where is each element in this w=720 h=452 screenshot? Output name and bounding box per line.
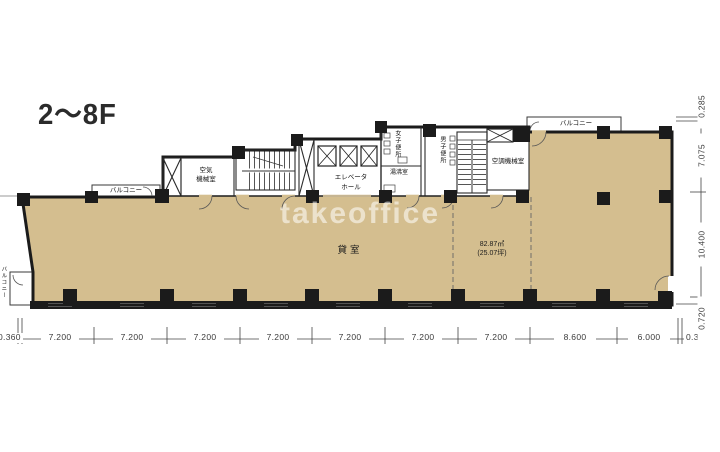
air-machine-room-label-2: 機械室 xyxy=(186,176,226,183)
right-wall-door-gap xyxy=(668,276,675,292)
dim-right-2: 10.400 xyxy=(698,223,709,267)
hot-water-room-label: 湯沸室 xyxy=(381,170,417,177)
dim-bottom-6: 7.200 xyxy=(404,333,442,343)
elevator-shafts xyxy=(318,146,377,166)
dim-bottom-left-end: 0.360 xyxy=(0,333,23,343)
dim-bottom-7: 7.200 xyxy=(477,333,515,343)
dim-bottom-2: 7.200 xyxy=(113,333,151,343)
dim-bottom-8: 8.600 xyxy=(554,333,596,343)
dim-right-0: 0.285 xyxy=(698,85,709,129)
rental-room-label: 貸室 xyxy=(328,246,372,257)
elevator-hall-label-2: ホール xyxy=(322,184,380,191)
rental-area-tsubo: (25.07坪) xyxy=(460,250,524,258)
elevator-hall-label-1: エレベータ xyxy=(322,174,380,181)
watermark: takeoffice xyxy=(280,197,440,231)
dim-bottom-5: 7.200 xyxy=(331,333,369,343)
balcony-top-right-label: バルコニー xyxy=(546,120,606,127)
dim-bottom-1: 7.200 xyxy=(41,333,79,343)
dim-right-1: 7.075 xyxy=(698,134,709,178)
balcony-top-left-label: バルコニー xyxy=(96,187,156,194)
balcony-bottom-left-label: バルコニー xyxy=(0,266,6,312)
dim-bottom-9: 6.000 xyxy=(628,333,670,343)
hvac-machine-room-label: 空調機械室 xyxy=(484,158,532,165)
dim-right-3: 0.720 xyxy=(698,297,709,341)
floor-title: 2〜8F xyxy=(38,99,117,132)
rental-area-m2: 82.87㎡ xyxy=(460,241,524,249)
mens-toilet-label: 男子便所 xyxy=(438,136,445,188)
dim-bottom-3: 7.200 xyxy=(186,333,224,343)
dim-bottom-4: 7.200 xyxy=(259,333,297,343)
air-machine-room-label-1: 空気 xyxy=(186,167,226,174)
floor-plan-page: takeoffice 2〜8F バルコニー 空気 機械室 エレベータ ホール 女… xyxy=(0,0,720,452)
